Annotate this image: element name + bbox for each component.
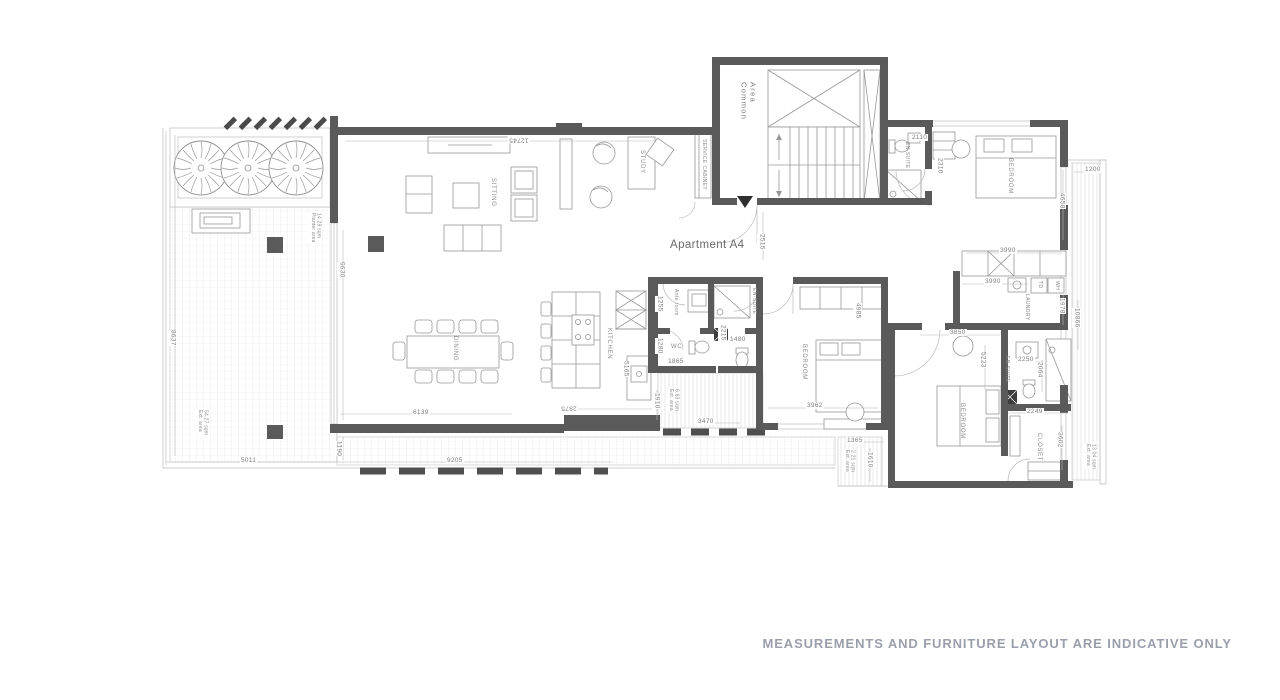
dim-balcony-center-w: 3470 xyxy=(697,418,715,425)
dim-wc-bottom: 1865 xyxy=(667,358,685,365)
ensuite-top-fixtures xyxy=(886,132,955,201)
dim-terrace-bottom-gap: 1190 xyxy=(334,441,343,456)
dim-wardrobe-top: 3990 xyxy=(999,247,1017,254)
floor-plan-drawing xyxy=(0,0,1280,700)
room-label-ensuite-top: EN-SUITE xyxy=(902,142,910,169)
entrance-arrow-icon xyxy=(737,196,753,208)
dim-balcony-right-w: 1200 xyxy=(1084,166,1102,173)
dim-kitchen-height: 5165 xyxy=(621,361,630,377)
dim-closet-w: 2249 xyxy=(1026,408,1044,415)
dim-laundry-h: 1978 xyxy=(1057,298,1066,314)
room-label-wc: WC xyxy=(670,344,683,351)
sofa-three-seat xyxy=(444,225,501,251)
area-label-balcony-bedroom: Ext. area2.21 sqm xyxy=(842,450,856,472)
dim-balcony-bedroom-w: 1365 xyxy=(846,437,864,444)
wardrobe xyxy=(933,132,955,159)
dim-living-left: 9630 xyxy=(337,262,346,278)
apartment-title: Apartment A4 xyxy=(669,239,745,252)
label-water-heater: WH xyxy=(1052,281,1060,290)
label-tumble-dryer: TD xyxy=(1035,281,1043,288)
toilet-icon xyxy=(695,341,709,353)
tree-icon xyxy=(221,141,275,195)
sofa-two-seat xyxy=(406,176,432,213)
room-label-bedroom-br: BEDROOM xyxy=(957,403,966,439)
room-label-bedroom-mid: BEDROOM xyxy=(799,344,808,380)
coffee-table xyxy=(453,183,479,208)
bedroom-top-furniture xyxy=(952,136,1066,276)
dim-ensuite-mid-w: 1480 xyxy=(729,336,747,343)
dim-closet-h: 3602 xyxy=(1055,432,1064,448)
dim-ensuite-top-h: 2310 xyxy=(935,158,944,174)
dim-ensuite-br-w: 2250 xyxy=(1017,356,1035,363)
dim-living-top: 12745 xyxy=(508,136,530,143)
dim-entry-corridor: 2515 xyxy=(757,234,766,250)
dim-balcony-center-h: 1910 xyxy=(652,393,661,409)
dim-terrace-bottom-right: 9205 xyxy=(446,457,464,464)
planter-box xyxy=(170,128,330,207)
dim-wc-width: 1280 xyxy=(655,338,664,354)
room-label-bedroom-top: BEDROOM xyxy=(1005,158,1014,194)
toilet-icon xyxy=(736,352,748,368)
dim-balcony-bedroom-h: 1610 xyxy=(865,452,874,468)
sink-icon xyxy=(688,290,710,312)
dim-kitchen-bottom: 2875 xyxy=(560,404,578,411)
dim-bedroom-top-h: 4658 xyxy=(1057,193,1066,209)
room-label-study: STUDY xyxy=(637,150,646,174)
disclaimer-text: MEASUREMENTS AND FURNITURE LAYOUT ARE IN… xyxy=(762,636,1232,651)
dim-ante-width: 1255 xyxy=(655,296,664,312)
room-label-kitchen: KITCHEN xyxy=(604,328,613,359)
round-chair xyxy=(846,403,864,421)
room-label-common-area: CommonArea xyxy=(738,82,757,120)
room-label-dining: DINING xyxy=(450,336,459,361)
dim-laundry-w: 3990 xyxy=(984,278,1002,285)
room-label-closet: CLOSET xyxy=(1034,433,1043,461)
area-label-terrace: Ext. area54.27 sqm xyxy=(195,410,209,435)
dim-ensuite-mid-h: 2215 xyxy=(718,325,727,341)
kitchen-counter xyxy=(627,356,651,400)
stove-icon xyxy=(572,315,594,345)
dim-bedroom-mid-h: 4985 xyxy=(853,303,862,319)
round-chair xyxy=(593,142,615,164)
dim-ensuite-br-h: 2064 xyxy=(1035,362,1044,378)
terrace-bench xyxy=(192,209,250,233)
room-label-sitting: SITTING xyxy=(488,178,497,207)
area-label-balcony-center: Ext. area6.63 sqm xyxy=(666,389,680,411)
dim-living-bottom: 6139 xyxy=(412,409,430,416)
kitchen-furniture xyxy=(541,291,651,400)
dim-balcony-right-h: 10866 xyxy=(1072,308,1081,328)
room-label-laundry: LAUNDRY xyxy=(1022,294,1030,321)
dim-bedroom-br-h: 5223 xyxy=(978,352,987,368)
bedroom-br-furniture xyxy=(937,336,1001,446)
round-chair xyxy=(953,336,973,356)
closet-shelf xyxy=(1010,416,1020,456)
area-label-balcony-right: Ext. area13.04 sqm xyxy=(1083,444,1097,469)
sitting-furniture xyxy=(406,137,674,251)
entrance-door-arc xyxy=(719,205,757,243)
room-label-ensuite-mid: EN-SUITE xyxy=(749,288,757,315)
room-label-ensuite-br: EN-SUITE xyxy=(1002,356,1010,383)
round-chair xyxy=(590,186,612,208)
area-label-planter: Planter area14.29 sqm xyxy=(308,213,322,243)
dim-bedroom-mid-w: 3962 xyxy=(806,402,824,409)
tree-icon xyxy=(269,141,323,195)
partition-shelf xyxy=(560,139,572,209)
dim-terrace-bottom-left: 5011 xyxy=(240,457,257,464)
dim-ensuite-top-w: 2110 xyxy=(911,134,928,141)
tree-icon xyxy=(174,141,228,195)
side-table xyxy=(952,140,970,158)
toilet-icon xyxy=(1023,384,1035,398)
dim-bedroom-br-top: 3850 xyxy=(949,329,967,336)
room-label-ante-room: Ante room xyxy=(671,289,679,316)
room-label-service-cabinet: SERVICE CABINET xyxy=(699,139,707,190)
floor-plan-page: CommonArea SERVICE CABINET STUDY SITTING… xyxy=(0,0,1280,700)
dim-terrace-left: 8637 xyxy=(168,330,177,346)
washer-icon xyxy=(1008,278,1026,292)
